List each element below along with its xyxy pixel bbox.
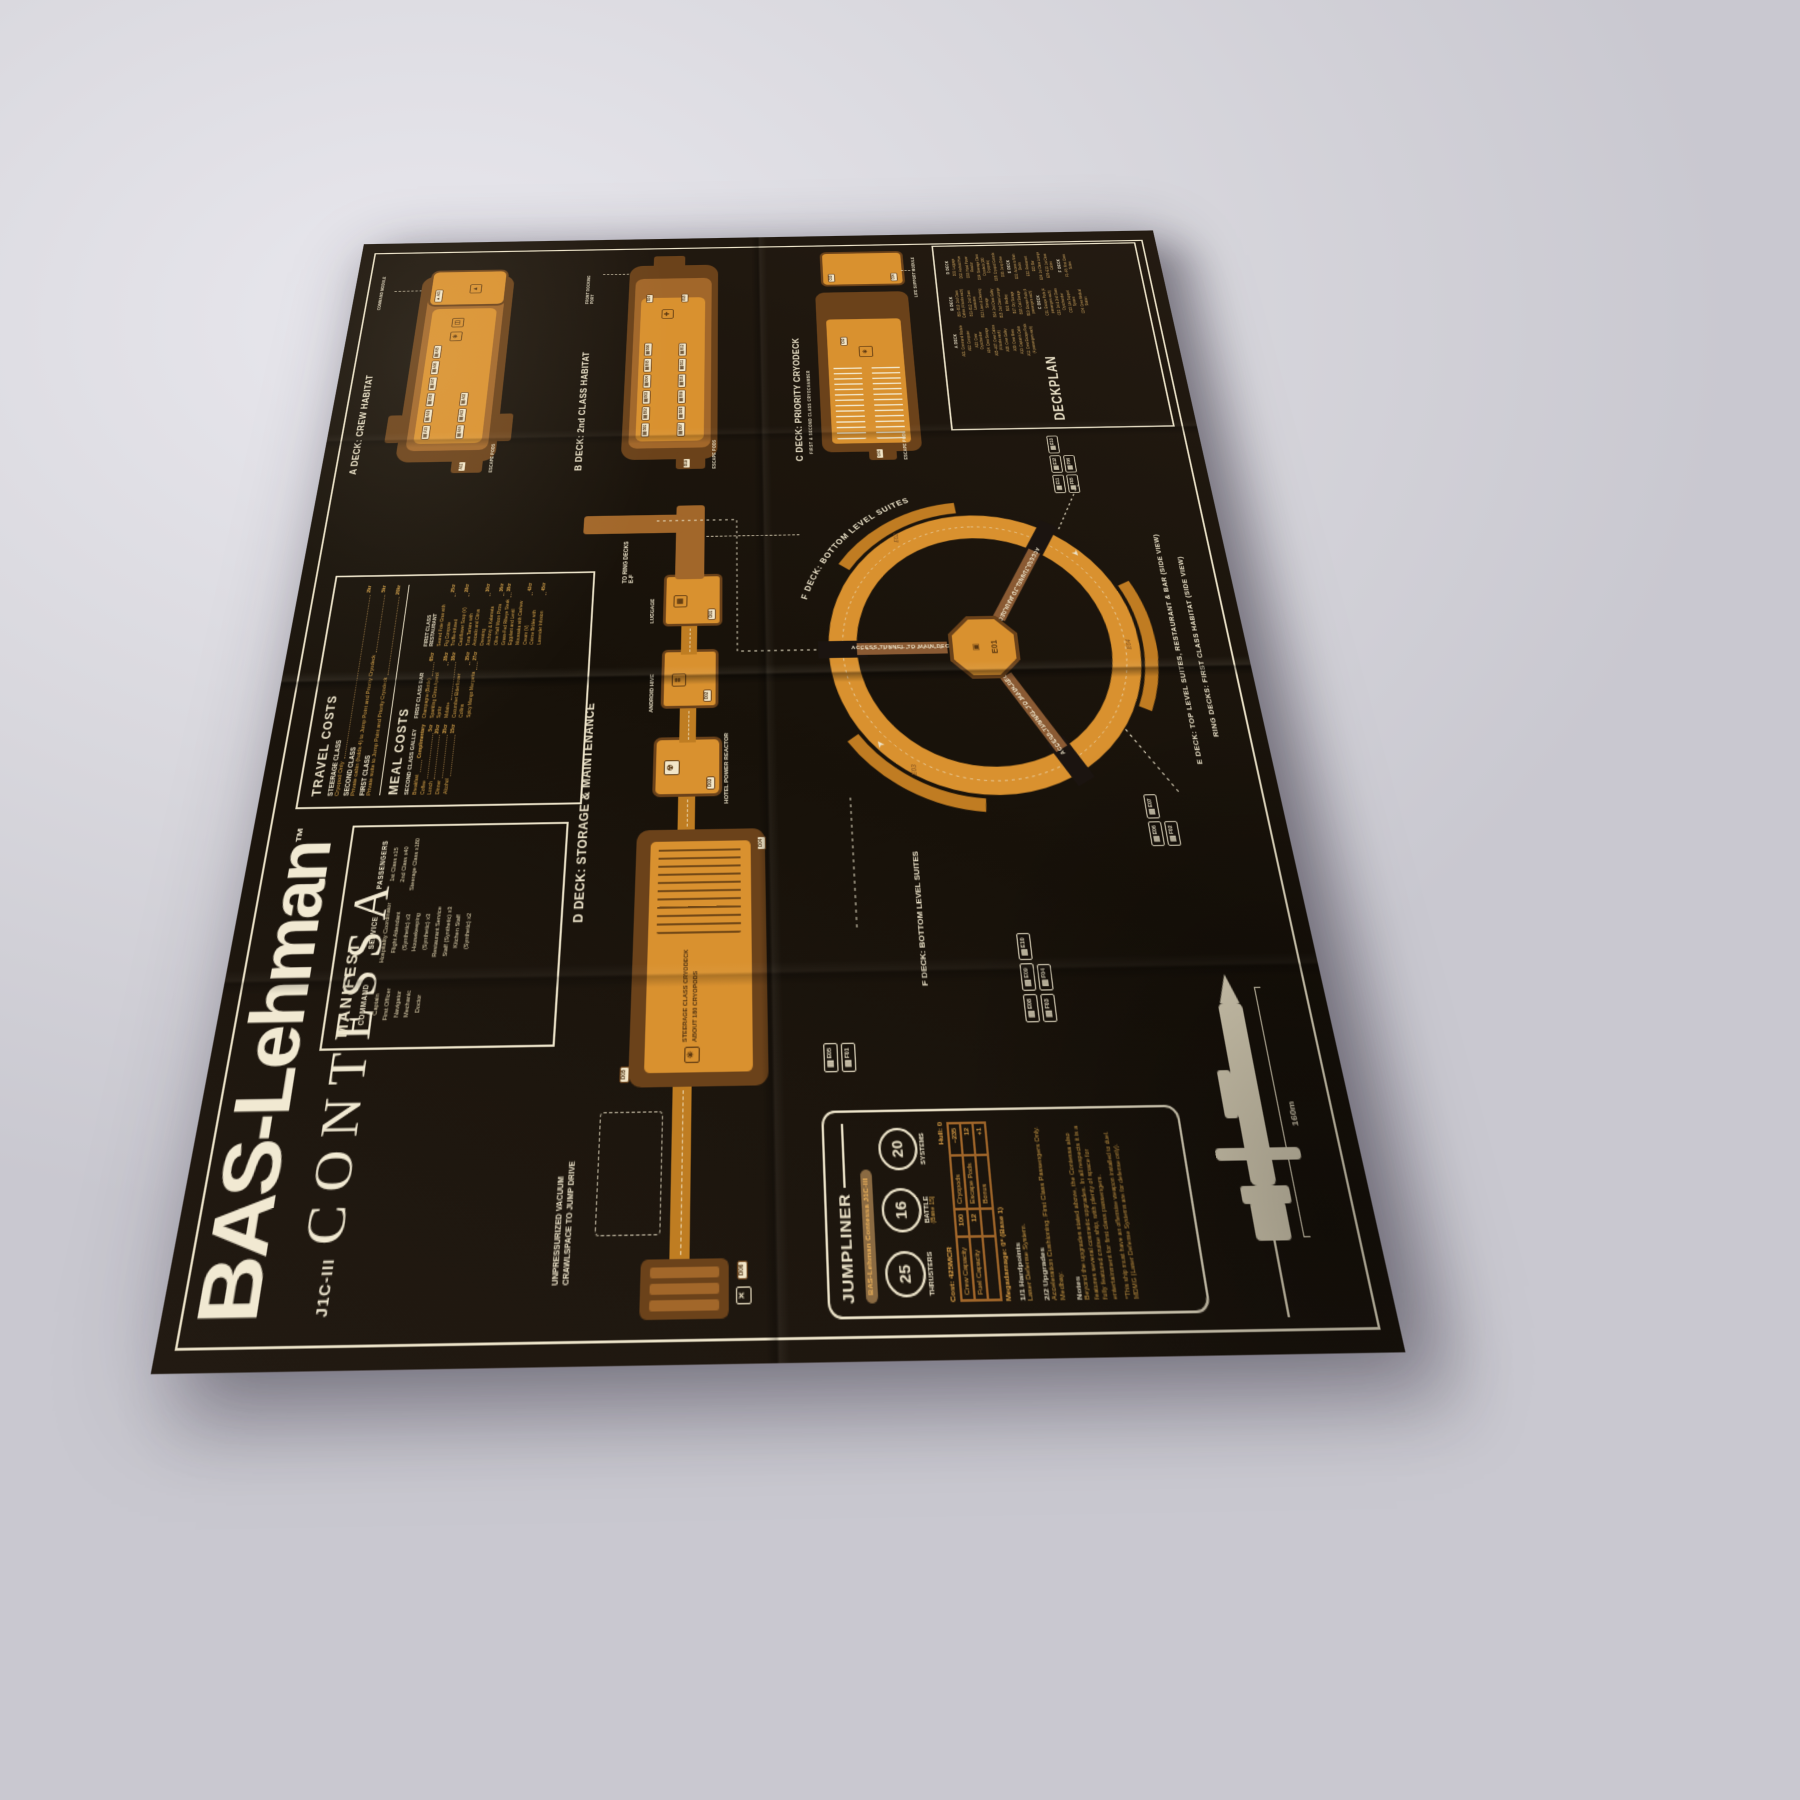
room-chip: C02 <box>840 337 848 346</box>
room-chip: A11 <box>457 461 466 471</box>
bunk-icon: ▤ <box>845 1059 853 1067</box>
bunk-icon: ▤ <box>427 401 433 405</box>
escape-pod-bay <box>450 454 483 473</box>
bunk-icon: ▤ <box>1070 485 1077 490</box>
manifest-service: SERVICE Hospitality CoordinatorFlight At… <box>366 901 477 964</box>
jump-drive <box>639 1258 729 1320</box>
jumpliner-panel: JUMPLINER BAS-Lehman Contessa J1C-III 25… <box>821 1105 1211 1320</box>
room-chip: ▲A01 <box>434 289 444 302</box>
bunk-icon: ▤ <box>827 1060 835 1068</box>
bunk-icon: ▤ <box>679 382 684 386</box>
room-chip: ▤E12 <box>1049 455 1063 473</box>
room-chip: C03 <box>828 274 835 283</box>
bunk-icon: ▤ <box>1169 835 1177 842</box>
bunk-icon: ▤ <box>1056 485 1063 490</box>
antenna-spar <box>1272 1233 1290 1318</box>
window-icon: ◫ <box>451 318 464 328</box>
room-chip: ▤E07 <box>1143 794 1160 818</box>
manifest-columns: COMMAND CaptainFirst OfficerNavigatorMec… <box>356 834 484 1038</box>
room-chip: ▤B03 <box>642 390 651 404</box>
bunk-icon: ▤ <box>1045 1010 1054 1018</box>
room-chip: D06 <box>737 1260 747 1280</box>
room-chip: ▤B06 <box>644 343 653 357</box>
room-chip: ▤B10 <box>678 373 687 387</box>
bunk-icon: ▤ <box>680 350 685 354</box>
cryo-icon: ✳ <box>859 346 874 357</box>
manifest-panel: MANIFEST COMMAND CaptainFirst OfficerNav… <box>319 822 569 1051</box>
bunk-icon: ▤ <box>1028 1010 1036 1018</box>
cryo-icon: ✳ <box>684 1047 700 1064</box>
room-chip: ▤B12 <box>678 343 686 357</box>
manifest-passengers: PASSENGERS 1st Class x152nd Class x40Ste… <box>376 834 484 894</box>
ship-name-pill: BAS-Lehman Contessa J1C-III <box>860 1170 878 1304</box>
meal-galley: SECOND CLASS GALLEY BreakfastComplimenta… <box>404 723 538 795</box>
dotted-route <box>850 798 857 929</box>
room-chip: ▤A02 <box>459 392 469 406</box>
hub-room-label: E01 <box>989 640 1001 654</box>
front-docking-label: FRONT DOCKING PORT <box>585 266 597 304</box>
docking-port <box>654 256 686 269</box>
bunk-icon: ▤ <box>459 416 465 420</box>
rule-line <box>840 1124 845 1189</box>
room-chip: D05 <box>619 1066 629 1083</box>
legend-col-2: B DECK B01–B10: 2nd Class Cabins (4 bunk… <box>946 285 1142 320</box>
room-chip: ▤B08 <box>677 406 686 421</box>
dotted-connector <box>603 274 633 275</box>
bunk-icon: ▤ <box>645 366 650 370</box>
bunk-icon: ▤ <box>643 415 648 419</box>
command-icon: ▲ <box>469 284 482 293</box>
bunk-icon: ▤ <box>1053 465 1060 470</box>
life-support-label: LIFE SUPPORT MODULE <box>910 246 920 297</box>
ring-room-code: E02 <box>894 534 901 543</box>
bunk-icon: ▤ <box>430 385 436 389</box>
engine-block <box>1250 1201 1293 1241</box>
ring-decks-diagram: ACCESS TUNNEL TO MAIN DECKS ACCESS TUNNE… <box>580 439 1282 955</box>
bunk-icon: ▤ <box>1153 835 1161 842</box>
room-chip: ▤B09 <box>677 389 686 403</box>
engine-nozzle <box>650 1266 719 1278</box>
nose-cone <box>1215 974 1240 1003</box>
hub-icon: ▣ <box>970 643 981 650</box>
engine-mount <box>1240 1185 1292 1204</box>
room-chip: ▤A03 <box>457 408 467 423</box>
trademark: ™ <box>293 827 313 843</box>
suite-cluster: ▤E05 ▤F01 <box>823 1043 856 1073</box>
meal-restaurant: FIRST CLASS RESTAURANT Seared Foie Gras … <box>423 582 548 646</box>
poster-sheet: BAS-Lehman™ J1C-III CONTESSA MANIFEST CO… <box>151 230 1406 1374</box>
stat-circles: 25 THRUSTERS 16 BATTLE (Base 15) 20 SYST… <box>877 1122 943 1303</box>
photo-background: BAS-Lehman™ J1C-III CONTESSA MANIFEST CO… <box>0 0 1800 1800</box>
jump-drive-icon: ✕ <box>736 1286 752 1304</box>
bunk-icon: ▤ <box>1067 465 1074 470</box>
bunk-icon: ▤ <box>461 400 467 404</box>
room-chip: C04 <box>890 272 898 281</box>
cryo-icon: ✳ <box>449 332 462 342</box>
medical-icon: ✚ <box>661 309 673 318</box>
room-chip: ▤F03 <box>1040 994 1057 1022</box>
bunk-icon: ▤ <box>644 382 649 386</box>
engine-nozzle <box>649 1299 719 1311</box>
deck-b-title: B DECK: 2nd CLASS HABITAT <box>573 352 591 471</box>
dotted-route <box>1117 718 1179 793</box>
deckplan-legend: DECKPLAN A DECK A01: Command ModuleA02: … <box>931 242 1174 430</box>
bunk-icon: ▤ <box>679 414 684 418</box>
command-module: ▲A01 ▲ <box>427 269 509 306</box>
poster: BAS-Lehman™ J1C-III CONTESSA MANIFEST CO… <box>151 230 1406 1374</box>
room-chip: ▤B02 <box>641 406 650 421</box>
legend-col-3: D DECK D01: LuggageD02: Android HiveD03:… <box>942 249 1134 282</box>
life-support-module: C03 C04 <box>820 251 906 287</box>
escape-route-outline <box>594 1111 663 1236</box>
room-chip: ▤E11 <box>1052 475 1066 493</box>
legend-col-1: A DECK A01: Command ModuleA02: ComputerA… <box>950 322 1150 358</box>
cryochamber-label: FIRST & SECOND CLASS CRYOCHAMBER <box>807 370 815 454</box>
stat-thrusters: 25 THRUSTERS <box>884 1245 944 1303</box>
bunk-icon: ▤ <box>1021 949 1029 956</box>
ring-room-code: E03 <box>911 765 919 776</box>
room-chip: ▤E08 <box>1023 994 1040 1022</box>
bunk-icon: ▤ <box>680 366 685 370</box>
stat-battle: 16 BATTLE (Base 15) <box>880 1182 938 1238</box>
bunk-icon: ▤ <box>425 417 431 421</box>
dotted-connector <box>901 270 911 271</box>
deck-a-title: A DECK: CREW HABITAT <box>348 375 376 475</box>
jumpliner-title: JUMPLINER <box>836 1193 858 1304</box>
deck-c-title: C DECK: PRIORITY CRYODECK <box>791 338 805 462</box>
bunk-icon: ▤ <box>432 369 437 373</box>
bunk-icon: ▤ <box>679 398 684 402</box>
model-code: J1C-III <box>313 1258 338 1317</box>
room-chip: ▤F01 <box>841 1043 857 1072</box>
bunk-icon: ▤ <box>1148 808 1156 815</box>
deckplan-header: DECKPLAN <box>1045 361 1069 420</box>
room-chip: B14 <box>646 294 653 303</box>
room-chip: ▤B04 <box>643 374 652 388</box>
corridor <box>669 1087 691 1260</box>
bunk-icon: ▤ <box>1050 445 1057 450</box>
command-module-label: COMMAND MODULE <box>377 274 388 310</box>
room-chip: ▤E13 <box>1046 435 1060 453</box>
room-chip: ▤E06 <box>1148 821 1165 846</box>
bunk-icon: ▤ <box>644 398 649 402</box>
room-chip: ▤B05 <box>643 358 652 372</box>
engine-nozzle <box>649 1283 719 1295</box>
access-tunnel-label: ACCESS TUNNEL TO MAIN DECKS <box>992 546 1040 629</box>
hull-value: Hull: 0 <box>937 1122 946 1145</box>
bunk-icon: ▤ <box>646 351 651 355</box>
bunk-icon: ▤ <box>434 353 439 357</box>
room-chip: ▤E05 <box>823 1043 839 1072</box>
spoke-access-tunnel: ACCESS TUNNEL TO MAIN DECKS <box>851 641 959 655</box>
room-chip: ▤B11 <box>678 358 687 372</box>
room-chip: B15 <box>681 294 688 303</box>
command-icon: ▲ <box>436 297 441 301</box>
stat-systems: 20 SYSTEMS <box>877 1122 934 1175</box>
